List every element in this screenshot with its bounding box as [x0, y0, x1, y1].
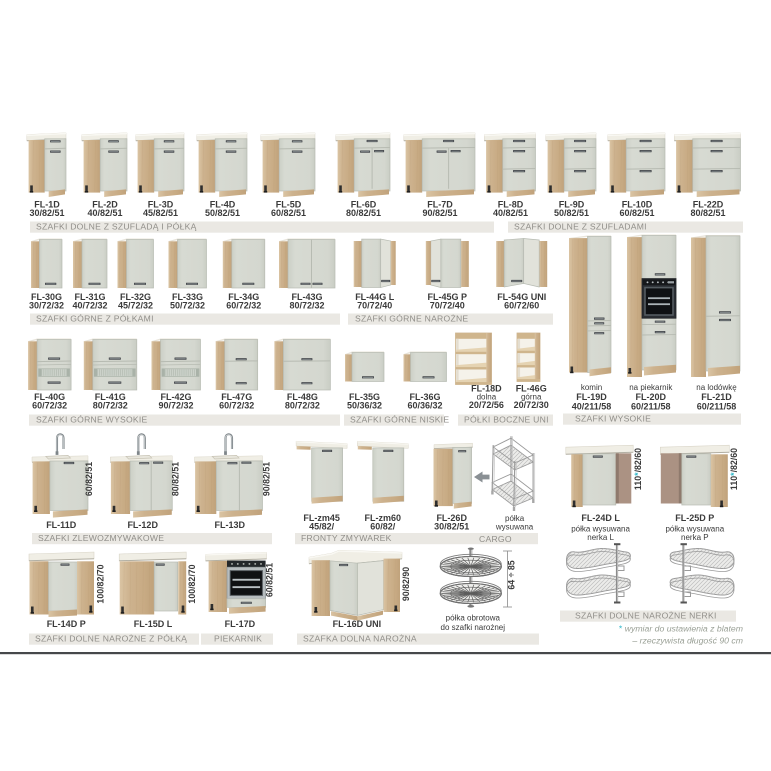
svg-text:90/82/90: 90/82/90	[401, 567, 411, 601]
svg-text:CARGO: CARGO	[479, 534, 512, 544]
svg-text:60/82/51: 60/82/51	[619, 208, 654, 218]
svg-text:do szafki narożnej: do szafki narożnej	[441, 623, 506, 632]
svg-text:60/82/: 60/82/	[370, 521, 396, 531]
svg-text:110*/82/60: 110*/82/60	[633, 448, 643, 490]
svg-text:30/72/32: 30/72/32	[29, 301, 64, 311]
svg-text:FL-11D: FL-11D	[46, 520, 77, 530]
svg-text:FL-14D P: FL-14D P	[47, 619, 86, 629]
svg-text:FL-15D L: FL-15D L	[134, 619, 173, 629]
svg-text:FL-17D: FL-17D	[225, 619, 256, 629]
svg-text:* wymiar do ustawienia z blate: * wymiar do ustawienia z blatem	[619, 624, 743, 634]
svg-text:80/82/51: 80/82/51	[171, 462, 181, 496]
svg-text:40/82/51: 40/82/51	[493, 208, 528, 218]
svg-text:40/72/32: 40/72/32	[72, 301, 107, 311]
svg-text:70/72/40: 70/72/40	[357, 301, 392, 311]
svg-text:nerka L: nerka L	[587, 533, 614, 542]
svg-text:50/36/32: 50/36/32	[347, 401, 382, 411]
svg-text:90/72/32: 90/72/32	[158, 401, 193, 411]
svg-text:PÓŁKI BOCZNE UNI: PÓŁKI BOCZNE UNI	[464, 415, 549, 425]
svg-text:60/72/32: 60/72/32	[226, 301, 261, 311]
svg-text:SZAFKA DOLNA NAROŻNA: SZAFKA DOLNA NAROŻNA	[303, 634, 417, 644]
svg-text:50/82/51: 50/82/51	[205, 208, 240, 218]
svg-text:60/211/58: 60/211/58	[631, 401, 671, 411]
svg-text:nerka P: nerka P	[681, 533, 709, 542]
svg-text:na piekarnik: na piekarnik	[629, 383, 673, 392]
svg-text:90/82/51: 90/82/51	[422, 208, 457, 218]
svg-text:FL-24D L: FL-24D L	[581, 513, 620, 523]
svg-text:60/36/32: 60/36/32	[407, 401, 442, 411]
svg-text:80/72/32: 80/72/32	[93, 401, 128, 411]
svg-text:60/211/58: 60/211/58	[697, 401, 737, 411]
svg-text:45/82/: 45/82/	[309, 521, 335, 531]
svg-text:60/82/51: 60/82/51	[271, 208, 306, 218]
svg-text:60/72/32: 60/72/32	[219, 401, 254, 411]
svg-text:PIEKARNIK: PIEKARNIK	[214, 634, 262, 644]
svg-text:FL-16D UNI: FL-16D UNI	[333, 619, 382, 629]
svg-text:komin: komin	[581, 383, 602, 392]
svg-text:SZAFKI DOLNE Z SZUFLADAMI: SZAFKI DOLNE Z SZUFLADAMI	[514, 222, 647, 232]
svg-text:FRONTY ZMYWAREK: FRONTY ZMYWAREK	[301, 533, 392, 543]
svg-text:64 ÷ 85: 64 ÷ 85	[507, 560, 517, 589]
svg-text:110*/82/60: 110*/82/60	[729, 448, 739, 490]
svg-text:70/72/40: 70/72/40	[430, 301, 465, 311]
svg-text:20/72/56: 20/72/56	[469, 400, 504, 410]
svg-text:FL-13D: FL-13D	[215, 520, 246, 530]
svg-text:30/82/51: 30/82/51	[29, 208, 64, 218]
svg-text:na lodówkę: na lodówkę	[696, 383, 737, 392]
svg-text:30/82/51: 30/82/51	[434, 521, 469, 531]
svg-text:półka obrotowa: półka obrotowa	[446, 614, 501, 623]
svg-text:60/82/51: 60/82/51	[84, 462, 94, 496]
svg-text:100/82/70: 100/82/70	[95, 564, 105, 603]
svg-text:SZAFKI GÓRNE NAROŻNE: SZAFKI GÓRNE NAROŻNE	[355, 314, 468, 324]
svg-text:SZAFKI GÓRNE WYSOKIE: SZAFKI GÓRNE WYSOKIE	[36, 415, 147, 425]
svg-text:50/72/32: 50/72/32	[170, 301, 205, 311]
svg-text:90/82/51: 90/82/51	[262, 462, 272, 496]
svg-text:80/82/51: 80/82/51	[690, 208, 725, 218]
svg-text:40/82/51: 40/82/51	[87, 208, 122, 218]
svg-text:SZAFKI GÓRNE NISKIE: SZAFKI GÓRNE NISKIE	[350, 415, 449, 425]
svg-text:45/72/32: 45/72/32	[118, 301, 153, 311]
svg-text:FL-25D P: FL-25D P	[675, 513, 714, 523]
svg-text:60/72/32: 60/72/32	[32, 401, 67, 411]
svg-text:FL-12D: FL-12D	[127, 520, 158, 530]
svg-text:wysuwana: wysuwana	[495, 522, 534, 531]
svg-text:50/82/51: 50/82/51	[554, 208, 589, 218]
svg-text:SZAFKI ZLEWOZMYWAKOWE: SZAFKI ZLEWOZMYWAKOWE	[38, 533, 164, 543]
svg-text:SZAFKI DOLNE NAROŻNE NERKI: SZAFKI DOLNE NAROŻNE NERKI	[575, 611, 717, 621]
svg-text:– rzeczywista długość 90 cm: – rzeczywista długość 90 cm	[631, 636, 743, 646]
svg-text:SZAFKI GÓRNE Z PÓŁKAMI: SZAFKI GÓRNE Z PÓŁKAMI	[36, 314, 154, 324]
svg-text:SZAFKI DOLNE Z SZUFLADĄ I PÓŁK: SZAFKI DOLNE Z SZUFLADĄ I PÓŁKĄ	[36, 222, 197, 232]
svg-text:80/72/32: 80/72/32	[285, 401, 320, 411]
svg-text:80/82/51: 80/82/51	[346, 208, 381, 218]
svg-text:60/82/51: 60/82/51	[265, 563, 275, 597]
svg-text:100/82/70: 100/82/70	[187, 564, 197, 603]
svg-text:SZAFKI WYSOKIE: SZAFKI WYSOKIE	[575, 414, 651, 424]
svg-text:45/82/51: 45/82/51	[143, 208, 178, 218]
svg-text:40/211/58: 40/211/58	[572, 401, 612, 411]
svg-text:20/72/30: 20/72/30	[514, 400, 549, 410]
svg-text:80/72/32: 80/72/32	[289, 301, 324, 311]
svg-text:SZAFKI DOLNE NAROŻNE Z PÓŁKĄ: SZAFKI DOLNE NAROŻNE Z PÓŁKĄ	[35, 634, 187, 644]
svg-text:60/72/60: 60/72/60	[504, 301, 539, 311]
